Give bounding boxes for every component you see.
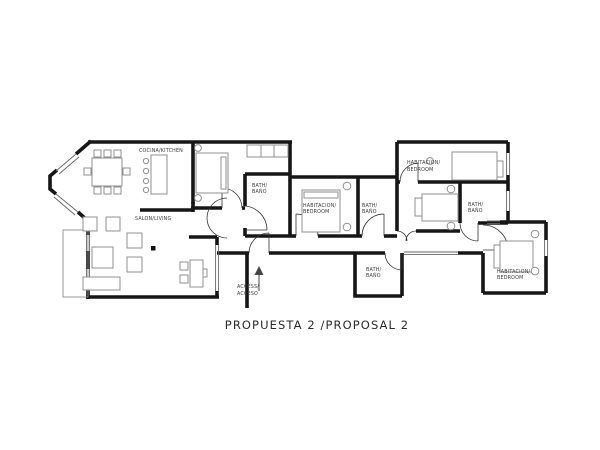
dining-table [84, 150, 130, 194]
label-bath-right-1: BATH/ [468, 202, 484, 208]
label-bath-lower-2: BAÑO [366, 272, 381, 279]
label-access-2: ACCESO [237, 291, 258, 297]
label-access-1: ACCESS/ [237, 284, 259, 290]
label-bedroom-bottom-right-1: HABITACION/ [497, 269, 530, 275]
desk-and-chairs [180, 260, 207, 287]
label-bedroom-middle-1: HABITACION/ [303, 203, 336, 209]
label-bath-top-1: BATH/ [252, 183, 268, 189]
floorplan-drawing: COCINA/KITCHEN SALON/LIVING BATH/ BAÑO H… [0, 0, 600, 450]
living-furniture [83, 217, 142, 290]
label-bedroom-bottom-right-2: BEDROOM [497, 275, 523, 281]
label-bedroom-top-right-1: HABITACION/ [407, 160, 440, 166]
column-dot [151, 246, 156, 251]
plan-title: PROPUESTA 2 /PROPOSAL 2 [225, 318, 409, 332]
label-kitchen: COCINA/KITCHEN [139, 148, 183, 154]
bed-top-right [427, 152, 503, 180]
label-bath-middle-1: BATH/ [362, 203, 378, 209]
kitchen-island [143, 155, 167, 194]
wardrobe-top-middle [247, 145, 288, 157]
bed-top-middle [195, 145, 228, 202]
label-bath-right-2: BAÑO [468, 207, 483, 214]
floorplan-page: COCINA/KITCHEN SALON/LIVING BATH/ BAÑO H… [0, 0, 600, 450]
bed-right-lower [415, 185, 458, 230]
bed-bottom-right [494, 230, 539, 275]
label-living: SALON/LIVING [135, 216, 171, 222]
label-bath-middle-2: BAÑO [362, 208, 377, 215]
label-bath-top-2: BAÑO [252, 188, 267, 195]
label-bedroom-middle-2: BEDROOM [303, 209, 329, 215]
label-bath-lower-1: BATH/ [366, 267, 382, 273]
label-bedroom-top-right-2: BEDROOM [407, 167, 433, 173]
